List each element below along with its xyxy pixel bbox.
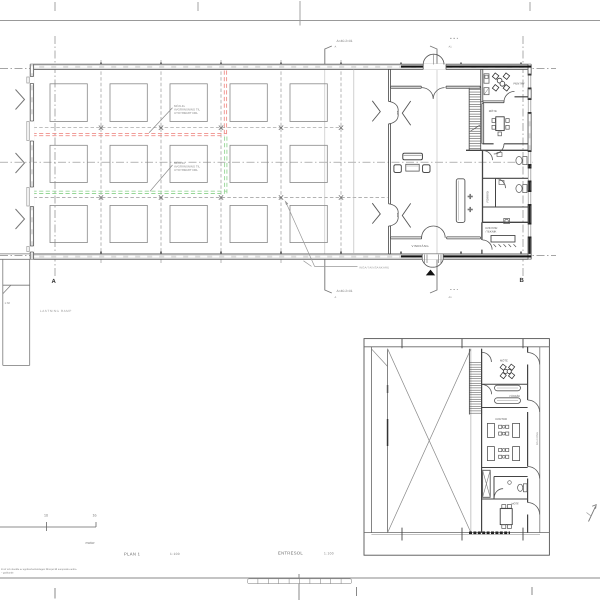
svg-text:BALKONG: BALKONG <box>536 432 539 445</box>
svg-text:MÖTE: MÖTE <box>489 109 497 113</box>
svg-text:A1: A1 <box>449 296 453 299</box>
svg-text:– godkande: – godkande <box>1 571 14 574</box>
svg-text:MÖTE: MÖTE <box>500 358 508 362</box>
svg-text:A: A <box>335 296 337 299</box>
svg-text:PLAN 1: PLAN 1 <box>124 552 141 557</box>
svg-text:LASTNING RAMP: LASTNING RAMP <box>40 309 72 313</box>
svg-text:A1: A1 <box>449 46 453 49</box>
svg-text:A: A <box>52 278 57 285</box>
svg-text:A=40.2=01: A=40.2=01 <box>337 289 353 293</box>
svg-text:INGA/TAINSANKARE: INGA/TAINSANKARE <box>359 265 389 269</box>
svg-text:A=40.2=01: A=40.2=01 <box>337 39 353 43</box>
svg-text:FÖRRÅD: FÖRRÅD <box>510 394 521 398</box>
svg-text:FÖRRÅD: FÖRRÅD <box>486 191 490 202</box>
svg-text:UTHYRBART DEL: UTHYRBART DEL <box>174 111 198 115</box>
svg-text:1:100: 1:100 <box>170 552 180 556</box>
svg-text:KONTOR: KONTOR <box>496 418 508 421</box>
svg-text:B: B <box>520 277 525 284</box>
svg-text:UTHYRBART DEL: UTHYRBART DEL <box>174 168 198 172</box>
svg-text:10: 10 <box>44 514 48 518</box>
svg-text:MÖTE: MÖTE <box>512 502 520 506</box>
svg-text:16: 16 <box>93 514 97 518</box>
svg-text:A: A <box>335 46 337 49</box>
svg-text:1:100: 1:100 <box>324 552 334 556</box>
svg-text:VINDFÅNG: VINDFÅNG <box>412 244 430 248</box>
svg-text:meter: meter <box>86 541 96 545</box>
svg-text:PENTRY: PENTRY <box>514 81 525 85</box>
svg-text:ENTRESOL: ENTRESOL <box>278 551 303 556</box>
svg-text:1:50: 1:50 <box>5 301 11 305</box>
svg-text:/TEKNIK: /TEKNIK <box>486 230 497 234</box>
